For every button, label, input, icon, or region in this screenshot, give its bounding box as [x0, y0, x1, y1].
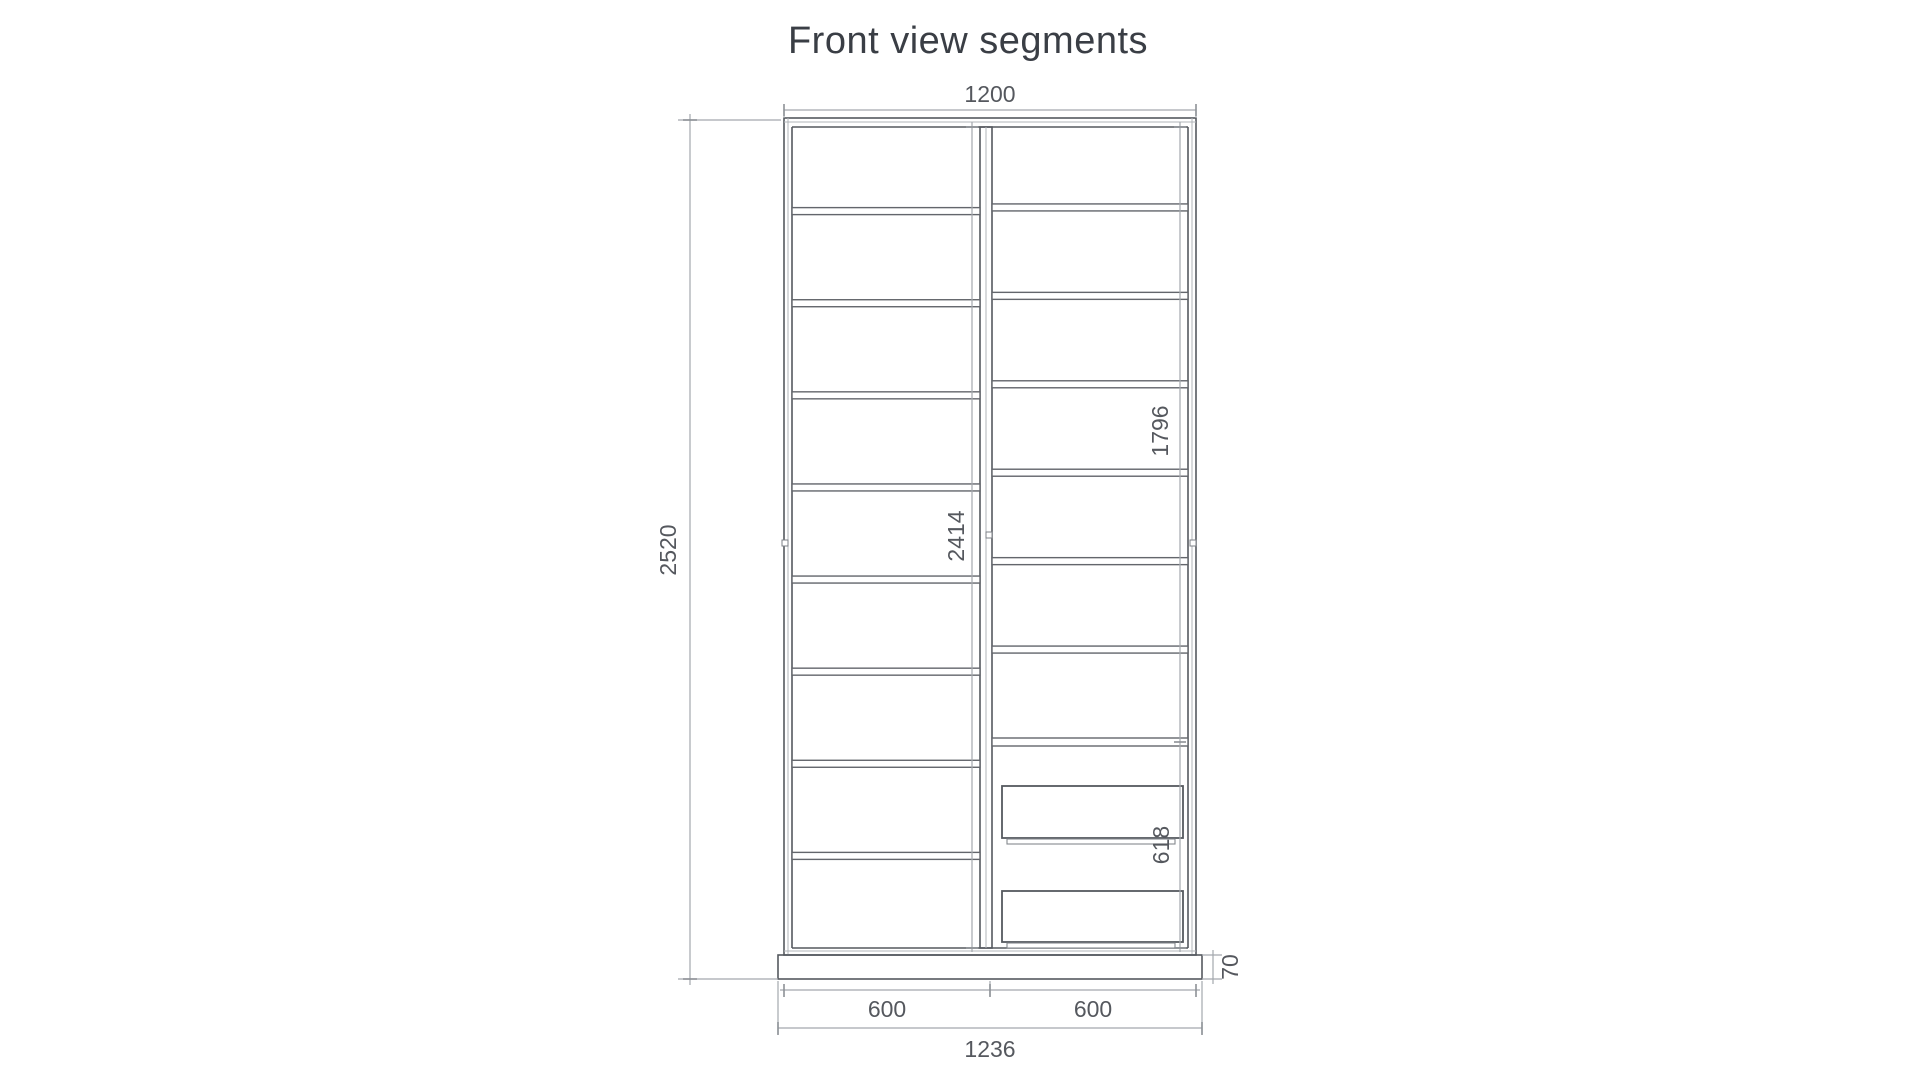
drawer-front	[1002, 891, 1183, 942]
left-shelf	[792, 760, 980, 767]
right-shelf	[992, 292, 1188, 299]
dim-label-left-bay-inner-height: 2414	[943, 510, 969, 561]
left-shelf	[792, 576, 980, 583]
front-view-drawing: 1200 2520 2414 1796 618	[0, 0, 1920, 1080]
dimension-right-sections: 1796 618	[1147, 122, 1186, 952]
dim-label-right-bay-width: 600	[1074, 996, 1112, 1022]
center-divider	[980, 127, 992, 948]
right-shelf	[992, 469, 1188, 476]
dimension-plinth-height: 70	[1202, 950, 1243, 984]
drawer-fronts	[1002, 786, 1183, 948]
drawer-lip	[1007, 943, 1175, 948]
left-shelf	[792, 392, 980, 399]
left-shelf	[792, 300, 980, 307]
plinth	[778, 955, 1202, 979]
dimension-overall-height: 2520	[655, 114, 781, 985]
right-panel-cam-marker	[1190, 540, 1196, 546]
dim-label-top-width: 1200	[964, 81, 1015, 107]
left-shelf	[792, 852, 980, 859]
left-shelf	[792, 208, 980, 215]
left-shelf	[792, 484, 980, 491]
right-shelf	[992, 646, 1188, 653]
dimension-top-width: 1200	[784, 81, 1196, 118]
dim-label-plinth-height: 70	[1217, 954, 1243, 980]
drawer-section-shelf	[992, 738, 1188, 746]
dim-label-left-bay-width: 600	[868, 996, 906, 1022]
dim-label-overall-height: 2520	[655, 524, 681, 575]
drawing-canvas: Front view segments	[0, 0, 1920, 1080]
left-panel-cam-marker	[782, 540, 788, 546]
dim-label-base-width: 1236	[964, 1036, 1015, 1062]
right-shelf	[992, 381, 1188, 388]
dimension-left-bay-inner-height: 2414	[943, 122, 978, 952]
dim-label-right-upper-height: 1796	[1147, 405, 1173, 456]
right-shelf	[992, 204, 1188, 211]
left-shelf	[792, 668, 980, 675]
dimension-bay-widths: 600 600	[780, 981, 1200, 1022]
dim-label-drawer-section-height: 618	[1148, 826, 1174, 864]
divider-cam-marker	[986, 532, 992, 538]
right-shelf	[992, 558, 1188, 565]
